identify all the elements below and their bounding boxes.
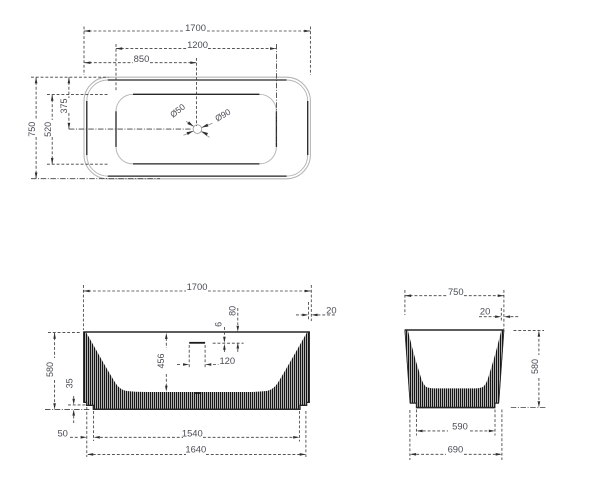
svg-text:80: 80 <box>228 306 238 316</box>
svg-text:20: 20 <box>326 305 336 316</box>
svg-text:1540: 1540 <box>182 428 203 439</box>
svg-text:120: 120 <box>219 355 235 366</box>
svg-text:1700: 1700 <box>185 22 206 33</box>
svg-text:690: 690 <box>448 443 464 454</box>
svg-text:1700: 1700 <box>187 281 208 292</box>
svg-text:50: 50 <box>57 428 67 439</box>
svg-text:580: 580 <box>45 362 55 377</box>
svg-text:750: 750 <box>27 122 37 137</box>
svg-text:375: 375 <box>59 98 69 113</box>
svg-text:6: 6 <box>214 322 224 327</box>
svg-text:1640: 1640 <box>185 444 206 455</box>
svg-text:580: 580 <box>530 359 540 374</box>
svg-text:750: 750 <box>448 286 464 297</box>
svg-text:456: 456 <box>156 353 166 368</box>
svg-text:20: 20 <box>480 305 490 316</box>
svg-text:520: 520 <box>43 122 53 137</box>
svg-text:850: 850 <box>134 53 150 64</box>
svg-text:590: 590 <box>452 420 468 431</box>
svg-text:1200: 1200 <box>187 39 208 50</box>
svg-text:35: 35 <box>64 378 74 388</box>
